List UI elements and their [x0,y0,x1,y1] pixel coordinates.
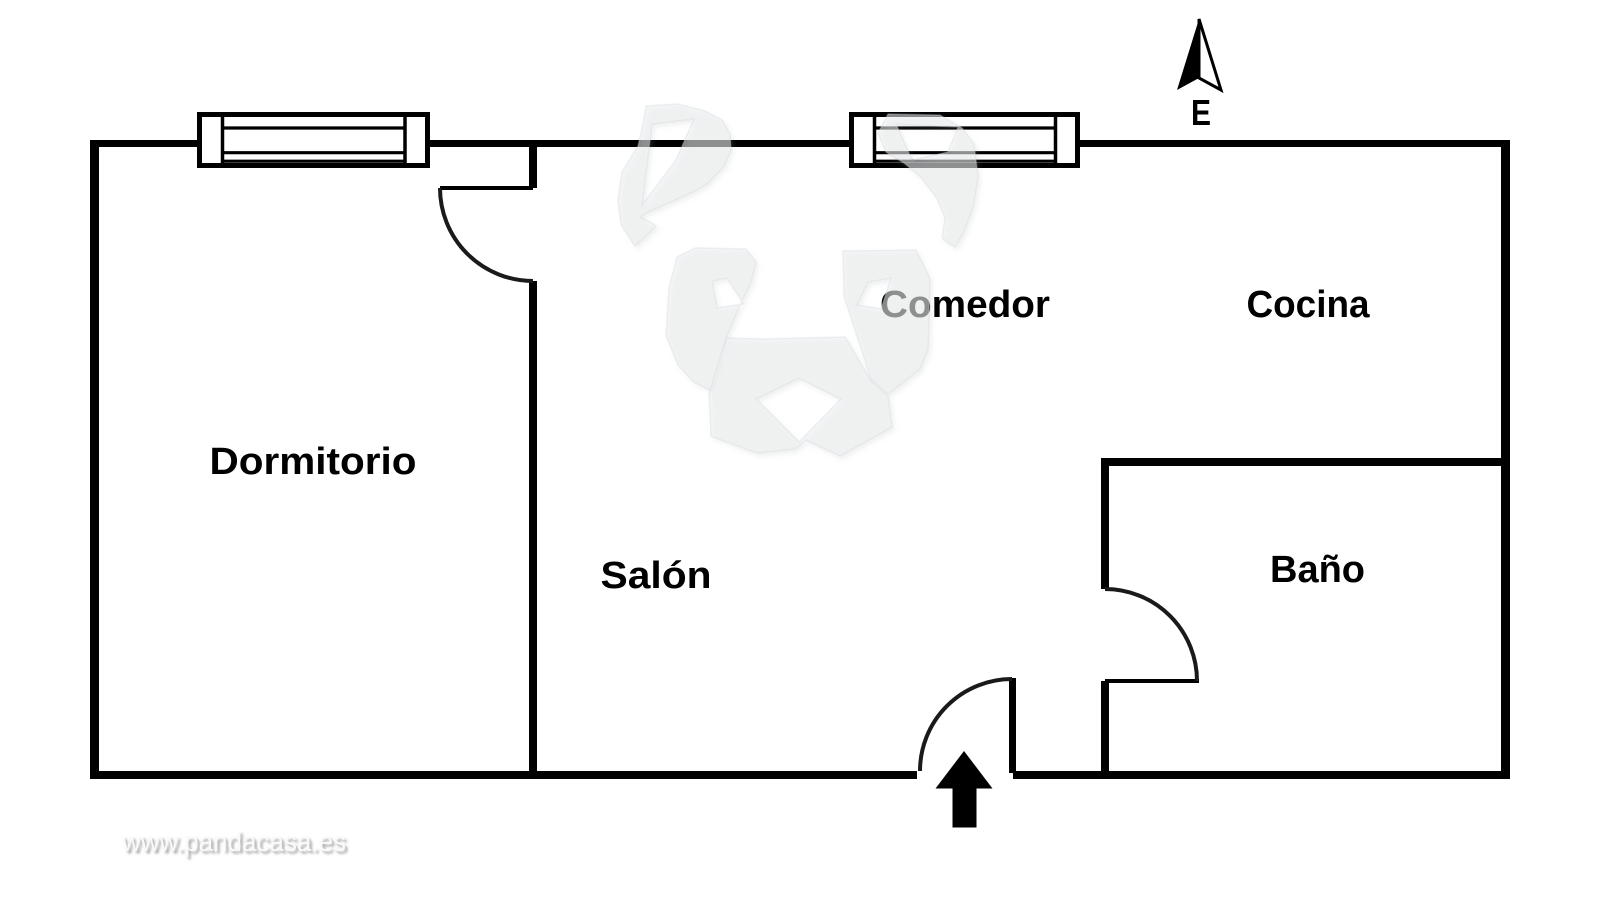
svg-text:E: E [1191,92,1211,133]
svg-text:Dormitorio: Dormitorio [210,441,417,483]
svg-text:Baño: Baño [1270,549,1365,591]
svg-text:www.pandacasa.es: www.pandacasa.es [121,826,346,857]
svg-text:Salón: Salón [601,555,712,597]
svg-text:Cocina: Cocina [1247,284,1371,326]
